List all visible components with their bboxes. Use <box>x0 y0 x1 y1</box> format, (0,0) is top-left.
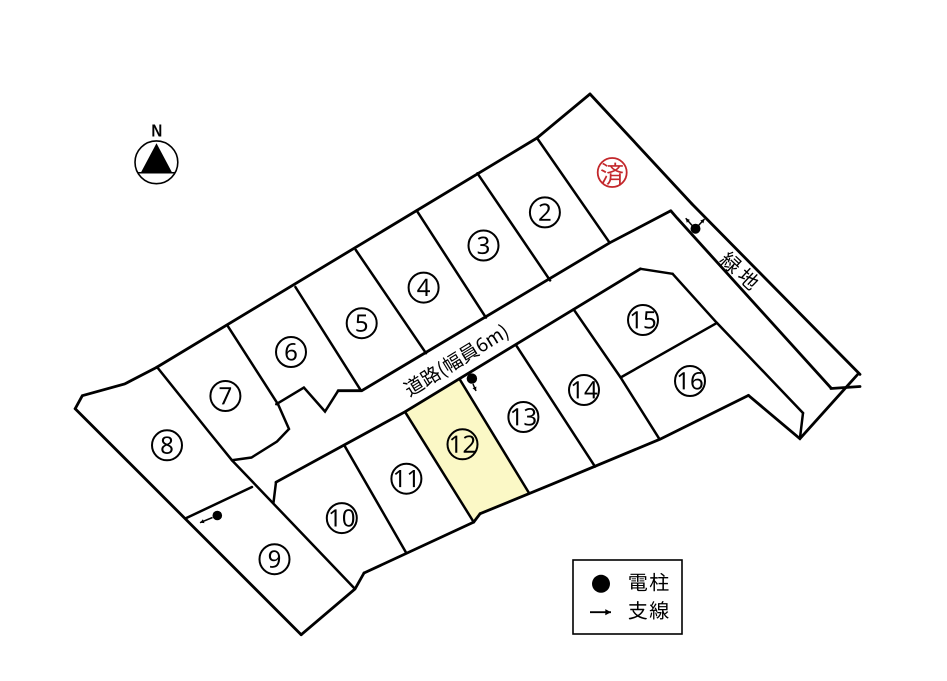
svg-text:N: N <box>151 120 162 141</box>
